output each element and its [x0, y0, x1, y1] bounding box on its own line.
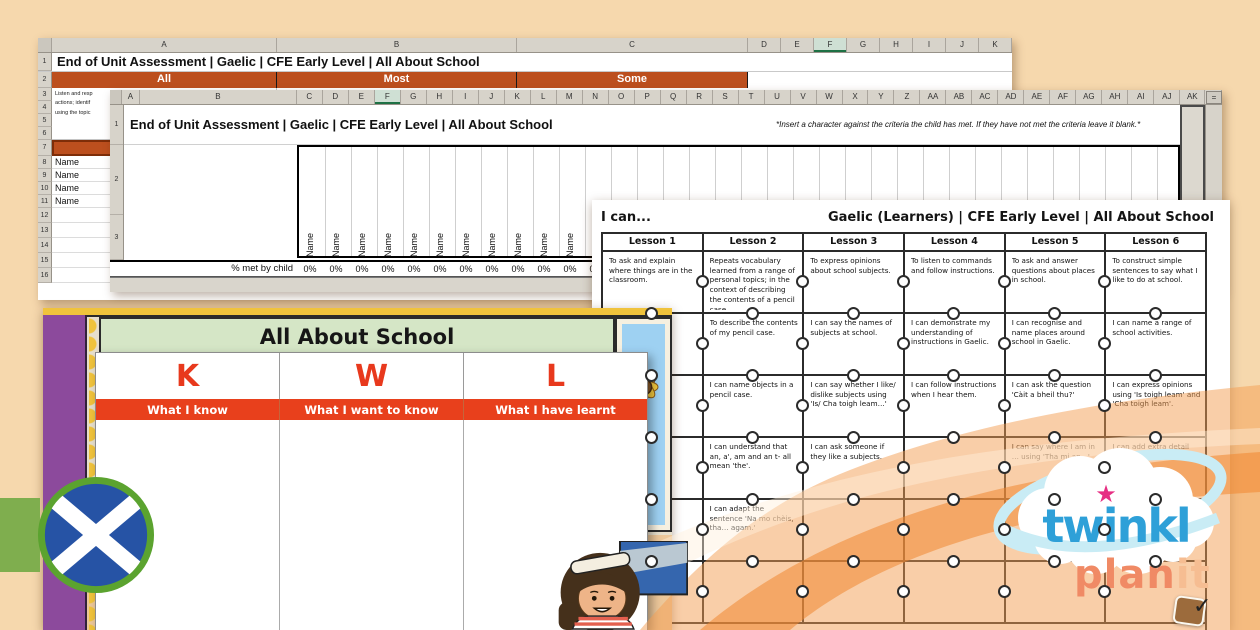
- rotated-name-label: Name: [435, 233, 445, 257]
- puzzle-tab-icon: [1149, 555, 1162, 568]
- assessment-band-some: Some: [517, 72, 748, 88]
- puzzle-cell-text: I can demonstrate my understanding of in…: [911, 318, 1000, 372]
- assessment-band-most: Most: [277, 72, 517, 88]
- puzzle-cell: I can express opinions using 'Is toigh l…: [1106, 376, 1205, 436]
- puzzle-tab-icon: [696, 337, 709, 350]
- puzzle-cell-text: [911, 442, 1000, 496]
- percent-value-cell[interactable]: 0%: [401, 262, 427, 276]
- front-column-header-V[interactable]: V: [791, 90, 817, 104]
- planit-it-text: it: [1176, 552, 1211, 598]
- puzzle-tab-icon: [1098, 399, 1111, 412]
- back-column-header-H[interactable]: H: [880, 38, 913, 52]
- scotland-flag-icon: [37, 476, 155, 594]
- puzzle-tab-icon: [847, 431, 860, 444]
- puzzle-cell-text: I can name objects in a pencil case.: [710, 380, 799, 434]
- front-column-header-Q[interactable]: Q: [661, 90, 687, 104]
- puzzle-cell-text: [911, 566, 1000, 620]
- puzzle-cell-text: [810, 566, 899, 620]
- percent-value-cell[interactable]: 0%: [375, 262, 401, 276]
- front-column-header-C[interactable]: C: [297, 90, 323, 104]
- percent-value-cell[interactable]: 0%: [297, 262, 323, 276]
- poster-top-trim: [43, 308, 672, 317]
- row-number[interactable]: 13: [38, 223, 52, 238]
- puzzle-tab-icon: [897, 523, 910, 536]
- puzzle-tab-icon: [897, 275, 910, 288]
- puzzle-cell: [804, 562, 905, 622]
- back-column-header-E[interactable]: E: [781, 38, 814, 52]
- puzzle-tab-icon: [1048, 555, 1061, 568]
- front-column-header-AF[interactable]: AF: [1050, 90, 1076, 104]
- back-column-header-C[interactable]: C: [517, 38, 748, 52]
- back-column-header-G[interactable]: G: [847, 38, 880, 52]
- select-all-corner[interactable]: [110, 90, 122, 104]
- front-column-header-T[interactable]: T: [739, 90, 765, 104]
- puzzle-cell-text: I can follow instructions when I hear th…: [911, 380, 1000, 434]
- puzzle-tab-icon: [897, 461, 910, 474]
- lesson-header: Lesson 6: [1106, 234, 1205, 250]
- row-number[interactable]: 15: [38, 253, 52, 268]
- front-column-header-AG[interactable]: AG: [1076, 90, 1102, 104]
- row-number[interactable]: 1: [38, 53, 52, 71]
- pupil-name-cell[interactable]: Name: [375, 233, 401, 257]
- puzzle-tab-icon: [847, 369, 860, 382]
- puzzle-tab-icon: [696, 275, 709, 288]
- row-number[interactable]: 5: [38, 114, 52, 127]
- puzzle-cell-text: [810, 504, 899, 558]
- row-number[interactable]: 1: [110, 105, 123, 145]
- kwl-letter-k: K: [96, 353, 280, 399]
- puzzle-row: To ask and explain where things are in t…: [603, 252, 1205, 314]
- puzzle-tab-icon: [897, 399, 910, 412]
- puzzle-tab-icon: [1098, 337, 1111, 350]
- puzzle-cell: [804, 500, 905, 560]
- front-column-header-AE[interactable]: AE: [1024, 90, 1050, 104]
- front-column-header-N[interactable]: N: [583, 90, 609, 104]
- select-all-corner[interactable]: [38, 38, 52, 52]
- puzzle-cell: Repeats vocabulary learned from a range …: [704, 252, 805, 312]
- puzzle-tab-icon: [998, 399, 1011, 412]
- pupil-name-cell[interactable]: Name: [427, 233, 453, 257]
- back-colheads: ABCDEFGHIJK: [38, 38, 1012, 53]
- pupil-name-cell[interactable]: Name: [453, 233, 479, 257]
- green-accent-band: [0, 498, 40, 572]
- instruction-note: *Insert a character against the criteria…: [776, 105, 1221, 145]
- front-column-header-W[interactable]: W: [817, 90, 843, 104]
- puzzle-row: I can name objects in a pencil case.I ca…: [603, 376, 1205, 438]
- puzzle-cell: I can demonstrate my understanding of in…: [905, 314, 1006, 374]
- puzzle-cell-text: I can understand that an, a', am and an …: [710, 442, 799, 496]
- front-column-header-S[interactable]: S: [713, 90, 739, 104]
- row-number[interactable]: 14: [38, 238, 52, 253]
- percent-value-cell[interactable]: 0%: [349, 262, 375, 276]
- puzzle-cell-text: To describe the contents of my pencil ca…: [710, 318, 799, 372]
- front-column-header-X[interactable]: X: [843, 90, 869, 104]
- rotated-name-label: Name: [461, 233, 471, 257]
- puzzle-cell-text: To listen to commands and follow instruc…: [911, 256, 1000, 310]
- puzzle-tab-icon: [1098, 275, 1111, 288]
- i-can-title: I can...: [601, 210, 651, 225]
- pupil-name-cell[interactable]: Name: [323, 233, 349, 257]
- puzzle-tab-icon: [696, 585, 709, 598]
- puzzle-cell: I can say whether I like/ dislike subjec…: [804, 376, 905, 436]
- percent-met-label: % met by child: [150, 262, 293, 276]
- puzzle-row: To describe the contents of my pencil ca…: [603, 314, 1205, 376]
- kwl-letter-row: KWL: [96, 353, 647, 399]
- front-column-header-I[interactable]: I: [453, 90, 479, 104]
- front-column-header-L[interactable]: L: [531, 90, 557, 104]
- front-column-header-M[interactable]: M: [557, 90, 583, 104]
- puzzle-tab-icon: [1149, 307, 1162, 320]
- puzzle-cell: I can recognise and name places around s…: [1006, 314, 1107, 374]
- puzzle-cell: To express opinions about school subject…: [804, 252, 905, 312]
- percent-value-cell[interactable]: 0%: [323, 262, 349, 276]
- kwl-letter-w: W: [280, 353, 464, 399]
- puzzle-tab-icon: [746, 555, 759, 568]
- row-number[interactable]: 7: [38, 140, 52, 156]
- front-column-header-B[interactable]: B: [140, 90, 297, 104]
- puzzle-cell-text: [911, 504, 1000, 558]
- assessment-band-all: All: [52, 72, 277, 88]
- rotated-name-label: Name: [539, 233, 549, 257]
- back-column-header-J[interactable]: J: [946, 38, 979, 52]
- puzzle-tab-icon: [1048, 369, 1061, 382]
- front-column-header-O[interactable]: O: [609, 90, 635, 104]
- puzzle-tab-icon: [796, 275, 809, 288]
- percent-cells: 0%0%0%0%0%0%0%0%0%0%0%0%: [297, 262, 609, 276]
- puzzle-tab-icon: [1048, 307, 1061, 320]
- front-column-header-J[interactable]: J: [479, 90, 505, 104]
- lesson-header: Lesson 3: [804, 234, 905, 250]
- row-number[interactable]: 3: [38, 88, 52, 101]
- front-column-header-AH[interactable]: AH: [1102, 90, 1128, 104]
- puzzle-tab-icon: [847, 307, 860, 320]
- lesson-header: Lesson 2: [704, 234, 805, 250]
- front-column-header-F[interactable]: F: [375, 90, 401, 104]
- puzzle-cell-text: I can express opinions using 'Is toigh l…: [1112, 380, 1201, 434]
- puzzle-tab-icon: [796, 337, 809, 350]
- puzzle-cell: I can name a range of school activities.: [1106, 314, 1205, 374]
- puzzle-cell: To describe the contents of my pencil ca…: [704, 314, 805, 374]
- back-column-header-D[interactable]: D: [748, 38, 781, 52]
- percent-value-cell[interactable]: 0%: [453, 262, 479, 276]
- back-sheet-title-cell[interactable]: End of Unit Assessment | Gaelic | CFE Ea…: [52, 53, 1012, 71]
- pupil-name-cell[interactable]: Name: [531, 233, 557, 257]
- row-number[interactable]: 2: [110, 145, 123, 215]
- puzzle-tab-icon: [1048, 431, 1061, 444]
- front-colheads: ABCDEFGHIJKLMNOPQRSTUVWXYZAAABACADAEAFAG…: [110, 90, 1222, 105]
- pupil-name-cell[interactable]: Name: [505, 233, 531, 257]
- row-number[interactable]: 9: [38, 169, 52, 182]
- puzzle-cell-text: To express opinions about school subject…: [810, 256, 899, 310]
- row-number[interactable]: 16: [38, 268, 52, 283]
- front-column-header-AD[interactable]: AD: [998, 90, 1024, 104]
- front-column-header-D[interactable]: D: [323, 90, 349, 104]
- puzzle-cell-text: To ask and explain where things are in t…: [609, 256, 698, 310]
- pupil-name-cell[interactable]: Name: [401, 233, 427, 257]
- twinkl-resource-preview: ABCDEFGHIJK 1 End of Unit Assessment | G…: [0, 0, 1260, 630]
- puzzle-tab-icon: [1149, 493, 1162, 506]
- puzzle-cell: To ask and answer questions about places…: [1006, 252, 1107, 312]
- puzzle-cell-text: To construct simple sentences to say wha…: [1112, 256, 1201, 310]
- puzzle-cell: To construct simple sentences to say wha…: [1106, 252, 1205, 312]
- front-column-header-K[interactable]: K: [505, 90, 531, 104]
- row-number[interactable]: 6: [38, 127, 52, 140]
- puzzle-cell-text: I can name a range of school activities.: [1112, 318, 1201, 372]
- front-column-header-AA[interactable]: AA: [920, 90, 946, 104]
- pupil-name-cell[interactable]: Name: [297, 233, 323, 257]
- row-number[interactable]: 12: [38, 208, 52, 223]
- back-column-header-K[interactable]: K: [979, 38, 1012, 52]
- front-column-header-A[interactable]: A: [122, 90, 140, 104]
- lesson-header: Lesson 5: [1006, 234, 1107, 250]
- puzzle-cell: I can follow instructions when I hear th…: [905, 376, 1006, 436]
- puzzle-tab-icon: [847, 493, 860, 506]
- girl-illustration: [548, 541, 688, 630]
- puzzle-tab-icon: [1048, 493, 1061, 506]
- back-band-row-wrap: 2 AllMostSome: [38, 72, 1012, 88]
- back-column-header-B[interactable]: B: [277, 38, 517, 52]
- percent-value-cell[interactable]: 0%: [427, 262, 453, 276]
- puzzle-cell-text: Repeats vocabulary learned from a range …: [710, 256, 799, 310]
- pupil-name-cell[interactable]: Name: [479, 233, 505, 257]
- front-column-header-R[interactable]: R: [687, 90, 713, 104]
- kwl-column-header: What I want to know: [280, 399, 464, 420]
- planit-wordmark: planit: [1074, 552, 1211, 598]
- front-column-header-P[interactable]: P: [635, 90, 661, 104]
- front-column-header-U[interactable]: U: [765, 90, 791, 104]
- row-number[interactable]: 4: [38, 101, 52, 114]
- puzzle-cell: I can say the names of subjects at schoo…: [804, 314, 905, 374]
- percent-value-cell[interactable]: 0%: [531, 262, 557, 276]
- percent-value-cell[interactable]: 0%: [479, 262, 505, 276]
- puzzle-tab-icon: [796, 523, 809, 536]
- row-number[interactable]: 2: [38, 72, 52, 88]
- front-column-header-AC[interactable]: AC: [972, 90, 998, 104]
- front-title-row: End of Unit Assessment | Gaelic | CFE Ea…: [124, 105, 1205, 145]
- puzzle-tab-icon: [897, 585, 910, 598]
- puzzle-tab-icon: [897, 337, 910, 350]
- puzzle-tab-icon: [998, 585, 1011, 598]
- back-column-header-F[interactable]: F: [814, 38, 847, 52]
- kwl-column-header: What I have learnt: [464, 399, 647, 420]
- front-column-header-Y[interactable]: Y: [868, 90, 894, 104]
- puzzle-cell-text: I can say whether I like/ dislike subjec…: [810, 380, 899, 434]
- front-column-header-AI[interactable]: AI: [1128, 90, 1154, 104]
- kwl-header-row: What I knowWhat I want to knowWhat I hav…: [96, 399, 647, 420]
- front-column-header-Z[interactable]: Z: [894, 90, 920, 104]
- back-column-header-A[interactable]: A: [52, 38, 277, 52]
- back-title-row: 1 End of Unit Assessment | Gaelic | CFE …: [38, 53, 1012, 72]
- puzzle-cell: I can ask someone if they like a subject…: [804, 438, 905, 498]
- front-column-header-AB[interactable]: AB: [946, 90, 972, 104]
- kwl-column[interactable]: [280, 420, 464, 630]
- lesson-header: Lesson 1: [603, 234, 704, 250]
- puzzle-tab-icon: [998, 337, 1011, 350]
- checkmark-icon: ✓: [1193, 594, 1211, 619]
- poster-title-banner: All About School: [99, 317, 615, 357]
- puzzle-cell: I can adapt the sentence 'Na mo chèis, t…: [704, 500, 805, 560]
- puzzle-titles: I can... Gaelic (Learners) | CFE Early L…: [601, 210, 1214, 225]
- rotated-name-label: Name: [331, 233, 341, 257]
- puzzle-tab-icon: [998, 275, 1011, 288]
- row-number[interactable]: 8: [38, 156, 52, 169]
- front-column-header-AJ[interactable]: AJ: [1154, 90, 1180, 104]
- puzzle-tab-icon: [746, 431, 759, 444]
- puzzle-tab-icon: [796, 399, 809, 412]
- rotated-name-label: Name: [305, 233, 315, 257]
- puzzle-cell-text: I can ask the question 'Càit a bheil thu…: [1012, 380, 1101, 434]
- scrollbar-split-box[interactable]: =: [1206, 91, 1222, 104]
- rotated-name-label: Name: [409, 233, 419, 257]
- front-column-header-H[interactable]: H: [427, 90, 453, 104]
- pupil-name-cell[interactable]: Name: [349, 233, 375, 257]
- puzzle-tab-icon: [796, 461, 809, 474]
- puzzle-tab-icon: [696, 461, 709, 474]
- rotated-name-label: Name: [383, 233, 393, 257]
- puzzle-tab-icon: [1149, 369, 1162, 382]
- puzzle-tab-icon: [998, 523, 1011, 536]
- puzzle-subject-title: Gaelic (Learners) | CFE Early Level | Al…: [828, 210, 1214, 225]
- back-rownums: 345678910111213141516: [38, 88, 52, 283]
- back-column-header-I[interactable]: I: [913, 38, 946, 52]
- star-icon: ★: [1095, 481, 1117, 508]
- puzzle-cell-text: [710, 566, 799, 620]
- puzzle-header-row: Lesson 1Lesson 2Lesson 3Lesson 4Lesson 5…: [603, 234, 1205, 252]
- front-column-header-G[interactable]: G: [401, 90, 427, 104]
- puzzle-cell: To ask and explain where things are in t…: [603, 252, 704, 312]
- puzzle-cell: [704, 562, 805, 622]
- puzzle-cell-text: I can ask someone if they like a subject…: [810, 442, 899, 496]
- puzzle-tab-icon: [696, 399, 709, 412]
- rotated-name-label: Name: [565, 233, 575, 257]
- puzzle-cell-text: I can recognise and name places around s…: [1012, 318, 1101, 372]
- front-column-header-AK[interactable]: AK: [1180, 90, 1205, 104]
- puzzle-cell: To listen to commands and follow instruc…: [905, 252, 1006, 312]
- kwl-column-header: What I know: [96, 399, 280, 420]
- puzzle-tab-icon: [696, 523, 709, 536]
- percent-value-cell[interactable]: 0%: [557, 262, 583, 276]
- puzzle-cell: I can ask the question 'Càit a bheil thu…: [1006, 376, 1107, 436]
- puzzle-cell-text: To ask and answer questions about places…: [1012, 256, 1101, 310]
- puzzle-cell-text: I can adapt the sentence 'Na mo chèis, t…: [710, 504, 799, 558]
- puzzle-tab-icon: [847, 555, 860, 568]
- puzzle-tab-icon: [796, 585, 809, 598]
- rotated-name-label: Name: [487, 233, 497, 257]
- puzzle-cell: I can name objects in a pencil case.: [704, 376, 805, 436]
- front-sheet-title-cell[interactable]: End of Unit Assessment | Gaelic | CFE Ea…: [130, 105, 553, 145]
- puzzle-tab-icon: [746, 493, 759, 506]
- puzzle-tab-icon: [1149, 431, 1162, 444]
- percent-value-cell[interactable]: 0%: [505, 262, 531, 276]
- puzzle-tab-icon: [998, 461, 1011, 474]
- front-column-header-E[interactable]: E: [349, 90, 375, 104]
- row-number[interactable]: 11: [38, 195, 52, 208]
- lesson-header: Lesson 4: [905, 234, 1006, 250]
- puzzle-cell: I can understand that an, a', am and an …: [704, 438, 805, 498]
- back-band-row: AllMostSome: [52, 72, 748, 88]
- row-number[interactable]: 3: [110, 215, 123, 260]
- puzzle-cell-text: I can say the names of subjects at schoo…: [810, 318, 899, 372]
- puzzle-tab-icon: [746, 307, 759, 320]
- puzzle-tab-icon: [746, 369, 759, 382]
- rotated-name-label: Name: [357, 233, 367, 257]
- kwl-letter-l: L: [464, 353, 647, 399]
- row-number[interactable]: 10: [38, 182, 52, 195]
- pupil-name-cell[interactable]: Name: [557, 233, 583, 257]
- rotated-name-label: Name: [513, 233, 523, 257]
